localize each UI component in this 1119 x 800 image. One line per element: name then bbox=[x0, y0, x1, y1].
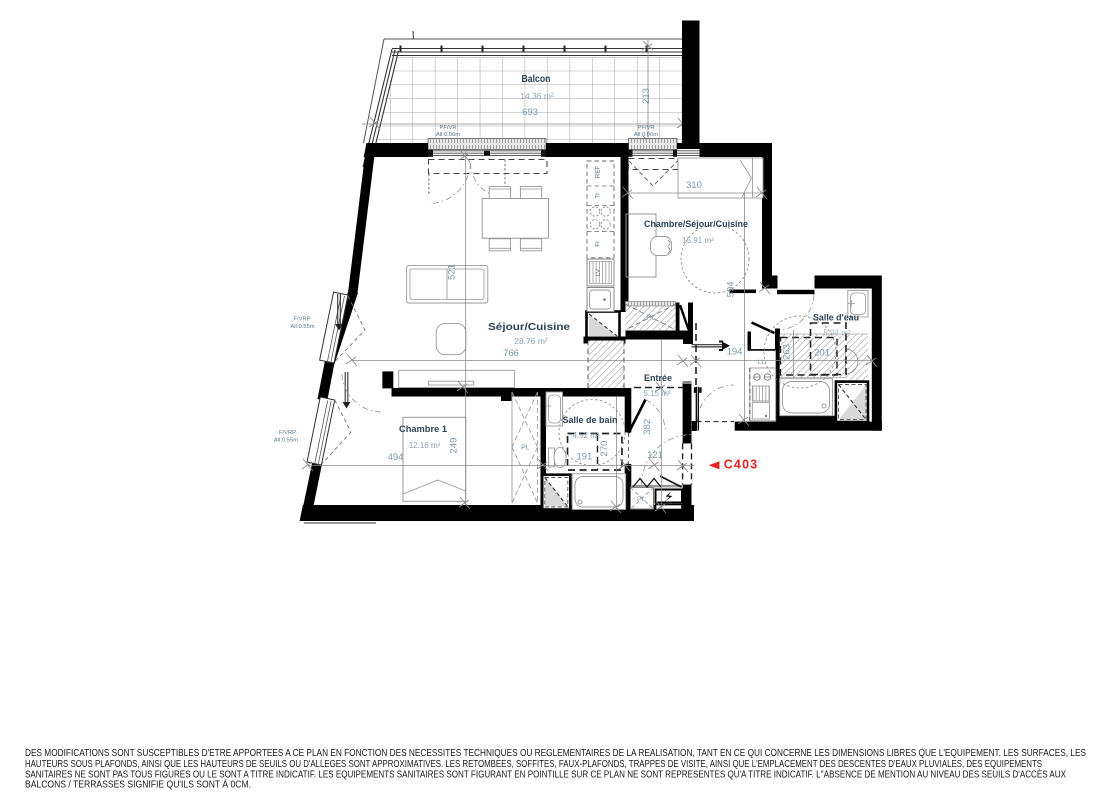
svg-text:BALCONS / TERRASSES SIGNIFIE Q: BALCONS / TERRASSES SIGNIFIE QU'ILS SONT… bbox=[25, 778, 251, 791]
svg-text:DES MODIFICATIONS SONT SUSCEPT: DES MODIFICATIONS SONT SUSCEPTIBLES D'ET… bbox=[25, 748, 1086, 759]
svg-text:HAUTEURS SOUS PLAFONDS, AINSI: HAUTEURS SOUS PLAFONDS, AINSI QUE LES HA… bbox=[25, 759, 1042, 770]
svg-text:SANITAIRES NE SONT PAS TOUS FI: SANITAIRES NE SONT PAS TOUS FIGURES OU L… bbox=[25, 767, 1066, 780]
